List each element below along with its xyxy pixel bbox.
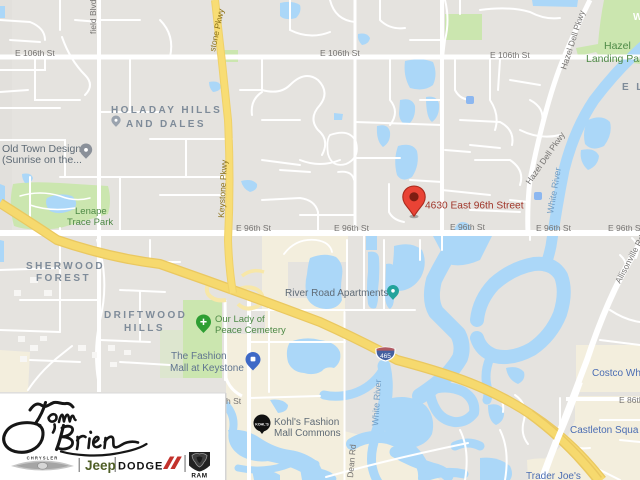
svg-text:4630 East 96th Street: 4630 East 96th Street <box>425 201 524 212</box>
svg-text:The Fashion: The Fashion <box>171 351 227 362</box>
svg-text:AND DALES: AND DALES <box>126 119 206 130</box>
svg-text:(Sunrise on the...: (Sunrise on the... <box>2 154 82 166</box>
svg-text:Peace Cemetery: Peace Cemetery <box>215 325 286 336</box>
svg-text:Costco Wh: Costco Wh <box>592 368 640 379</box>
svg-text:KOHL'S: KOHL'S <box>255 423 269 427</box>
svg-text:W: W <box>633 12 640 23</box>
svg-text:465: 465 <box>380 353 391 360</box>
svg-text:E 96th St: E 96th St <box>536 223 572 233</box>
svg-text:Hazel: Hazel <box>604 40 631 52</box>
svg-text:E 106th St: E 106th St <box>15 48 55 58</box>
svg-text:E L: E L <box>622 82 640 93</box>
svg-text:HILLS: HILLS <box>124 323 165 334</box>
svg-text:h St: h St <box>226 396 242 406</box>
svg-text:River Road Apartments: River Road Apartments <box>285 288 388 299</box>
svg-text:SHERWOOD: SHERWOOD <box>26 261 105 272</box>
svg-text:Jeep: Jeep <box>85 458 116 473</box>
svg-text:Our Lady of: Our Lady of <box>215 314 265 325</box>
svg-text:CHRYSLER: CHRYSLER <box>27 456 59 461</box>
svg-text:Kohl's Fashion: Kohl's Fashion <box>274 417 339 428</box>
svg-text:Mall Commons: Mall Commons <box>274 428 341 439</box>
svg-text:E 96th St: E 96th St <box>334 223 370 233</box>
svg-text:E 106th St: E 106th St <box>320 48 360 58</box>
svg-text:Castleton Squa: Castleton Squa <box>570 425 639 436</box>
svg-text:DODGE: DODGE <box>118 461 163 473</box>
svg-text:Lenape: Lenape <box>75 206 107 217</box>
svg-text:Trader Joe's: Trader Joe's <box>526 471 581 480</box>
svg-text:DRIFTWOOD: DRIFTWOOD <box>104 310 187 321</box>
svg-text:FOREST: FOREST <box>36 273 91 284</box>
svg-text:field Blvd: field Blvd <box>88 0 98 34</box>
svg-text:Trace Park: Trace Park <box>67 217 113 228</box>
svg-text:Mall at Keystone: Mall at Keystone <box>170 363 244 374</box>
svg-text:HOLADAY HILLS: HOLADAY HILLS <box>111 105 222 116</box>
svg-text:E 106th St: E 106th St <box>490 50 530 60</box>
svg-text:E 86th: E 86th <box>619 395 640 405</box>
svg-text:RAM: RAM <box>191 473 207 480</box>
svg-text:E 96th St: E 96th St <box>236 223 272 233</box>
svg-text:E 96th St: E 96th St <box>608 223 640 233</box>
svg-text:Landing Par: Landing Par <box>586 53 640 65</box>
svg-text:E 96th St: E 96th St <box>450 222 486 232</box>
